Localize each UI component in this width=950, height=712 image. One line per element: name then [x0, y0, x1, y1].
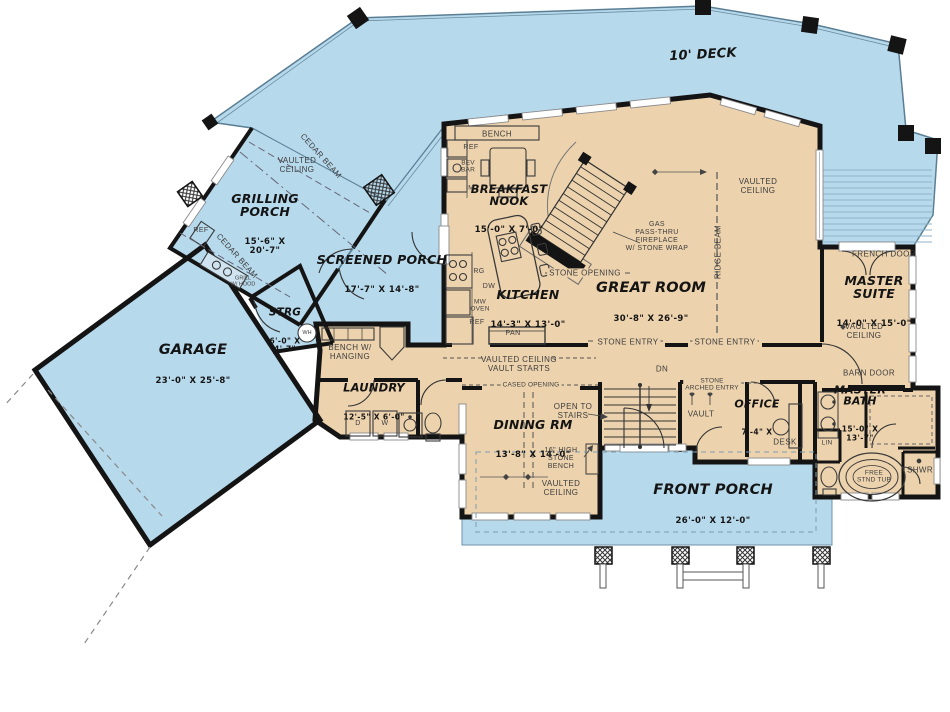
french-door-label: FRENCH DOOR	[852, 249, 916, 258]
kitchen-dims: 14'-3" X 13'-0"	[490, 321, 565, 331]
master-suite-name: MASTER SUITE	[836, 275, 912, 301]
stone-bench-label: 16" HIGH STONE BENCH	[545, 447, 578, 471]
ridge-beam-label: RIDGE BEAM	[713, 225, 722, 279]
breakfast-nook-name: BREAKFAST NOOK	[471, 184, 548, 207]
laundry-dims: 12'-5" X 6'-0"	[343, 413, 405, 422]
stone-entry-left-label: STONE ENTRY	[595, 337, 660, 346]
tub-label: FREE STND TUB	[857, 470, 891, 485]
garage-dims: 23'-0" X 25'-8"	[155, 377, 230, 387]
great-room-name: GREAT ROOM	[596, 281, 706, 296]
washer-label: W	[381, 420, 388, 428]
vault-label: VAULT	[688, 409, 715, 418]
master-bath-dims: 15'-0" X 13'-7"	[834, 426, 886, 443]
ref-top-label: REF	[463, 144, 478, 152]
bev-bar-label: BEV BAR	[461, 160, 475, 175]
floorplan-drawing	[0, 0, 950, 712]
garage-label: GARAGE 23'-0" X 25'-8"	[155, 325, 230, 405]
front-porch-name: FRONT PORCH	[653, 483, 773, 498]
dryer-label: D	[355, 420, 360, 428]
grill-hood-label: GRILL W/ HOOD	[231, 276, 256, 289]
laundry-label: LAUNDRY 12'-5" X 6'-0"	[343, 364, 405, 439]
dishwasher-label: DW	[483, 283, 495, 291]
strg-dims: 6'-0" X 4'-7"	[269, 337, 301, 354]
office-dims: 7'-4" X	[734, 429, 779, 438]
dining-room-name: DINING RM	[493, 419, 572, 432]
bench-hanging-label: BENCH W/ HANGING	[328, 343, 371, 361]
mw-oven-label: MW OVEN	[470, 299, 489, 314]
office-name: OFFICE	[734, 399, 779, 410]
bench-label: BENCH	[482, 129, 512, 138]
breakfast-nook-label: BREAKFAST NOOK 15'-0" X 7'-0"	[471, 166, 548, 254]
garage-name: GARAGE	[155, 343, 230, 358]
shower-label: SHWR	[907, 465, 933, 474]
vaulted-ceiling-hall-label: VAULTED CEILING VAULT STARTS	[481, 355, 557, 373]
fireplace-label: GAS PASS-THRU FIREPLACE W/ STONE WRAP	[626, 221, 689, 253]
great-room-dims: 30'-8" X 26'-9"	[596, 315, 706, 325]
water-heater-label: WH	[302, 330, 311, 336]
stone-arched-entry-label: STONE ARCHED ENTRY	[683, 378, 741, 393]
floor-plan: 10' DECK GRILLING PORCH 15'-6" X 20'-7" …	[0, 0, 950, 712]
kitchen-label: KITCHEN 14'-3" X 13'-0"	[490, 271, 565, 349]
deck-name: 10' DECK	[669, 47, 737, 64]
breakfast-nook-dims: 15'-0" X 7'-0"	[471, 226, 548, 236]
front-porch-dims: 26'-0" X 12'-0"	[653, 517, 773, 527]
strg-label: STRG 6'-0" X 4'-7"	[269, 290, 301, 373]
vaulted-ceiling-master-label: VAULTED CEILING	[845, 322, 884, 340]
front-porch-label: FRONT PORCH 26'-0" X 12'-0"	[653, 465, 773, 545]
laundry-name: LAUNDRY	[343, 382, 405, 394]
screened-porch-label: SCREENED PORCH 17'-7" X 14'-8"	[317, 236, 447, 314]
vaulted-ceiling-grilling-label: VAULTED CEILING	[278, 156, 317, 174]
grilling-porch-name: GRILLING PORCH	[231, 193, 298, 219]
screened-porch-dims: 17'-7" X 14'-8"	[317, 286, 447, 296]
deck-label: 10' DECK	[668, 29, 738, 82]
down-label: DN	[656, 364, 668, 373]
master-bath-label: MASTER BATH 15'-0" X 13'-7"	[834, 367, 886, 462]
pantry-label: PAN	[505, 330, 520, 338]
cased-opening-label: CASED OPENING	[501, 381, 562, 388]
strg-name: STRG	[269, 308, 301, 319]
ice-maker-label: IM	[466, 184, 474, 191]
stone-opening-label: STONE OPENING	[547, 268, 623, 277]
screened-porch-name: SCREENED PORCH	[317, 254, 447, 267]
range-label: RG	[473, 268, 484, 276]
master-bath-name: MASTER BATH	[834, 385, 886, 407]
barn-door-label: BARN DOOR	[843, 368, 895, 377]
open-to-stairs-label: OPEN TO STAIRS	[554, 402, 593, 420]
kitchen-name: KITCHEN	[490, 289, 565, 302]
ref-kitchen-label: REF	[469, 319, 484, 327]
linen-label: LIN	[822, 439, 833, 446]
ref-grilling-label: REF	[193, 227, 208, 235]
desk-label: DESK	[773, 437, 796, 446]
vaulted-ceiling-great-label: VAULTED CEILING	[739, 177, 778, 195]
vaulted-ceiling-dining-label: VAULTED CEILING	[542, 479, 581, 497]
stone-entry-right-label: STONE ENTRY	[692, 337, 757, 346]
